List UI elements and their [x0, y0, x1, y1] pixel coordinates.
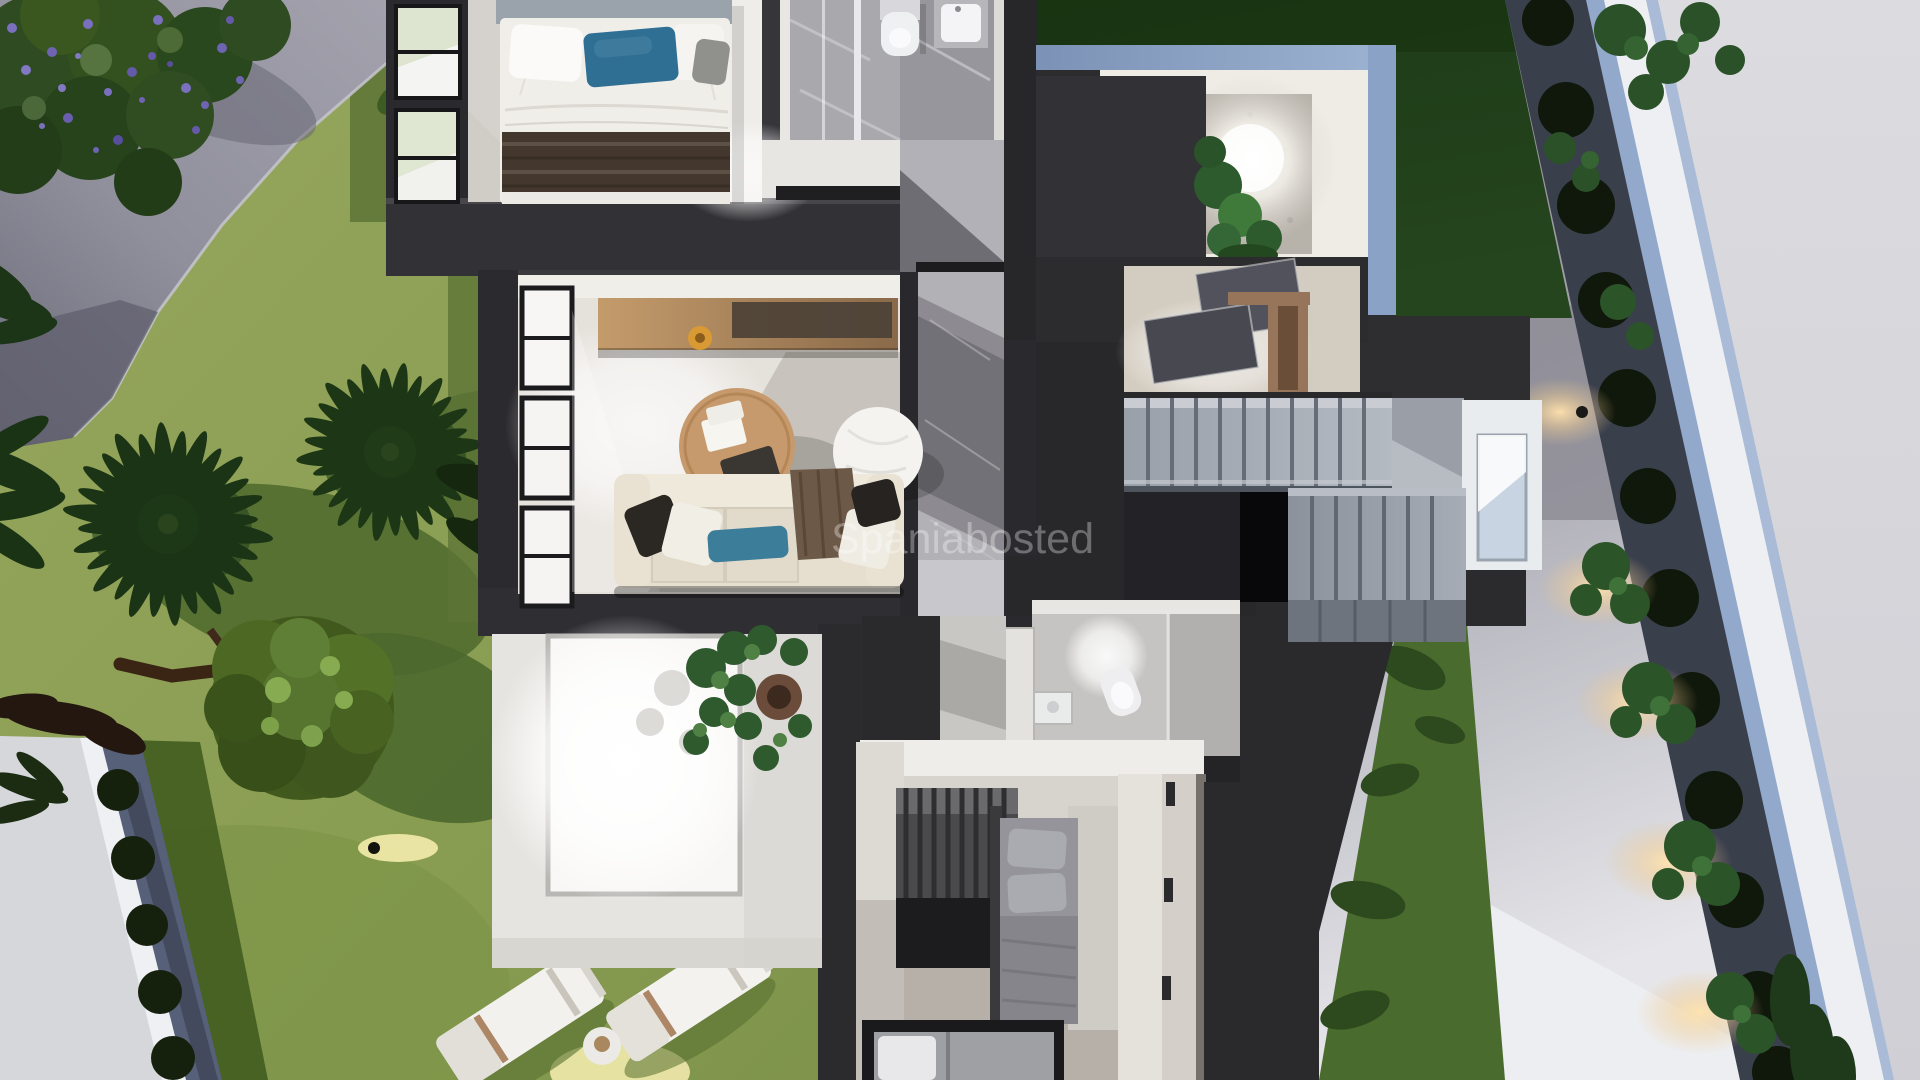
svg-text:Spaniabosted: Spaniabosted — [831, 515, 1094, 563]
